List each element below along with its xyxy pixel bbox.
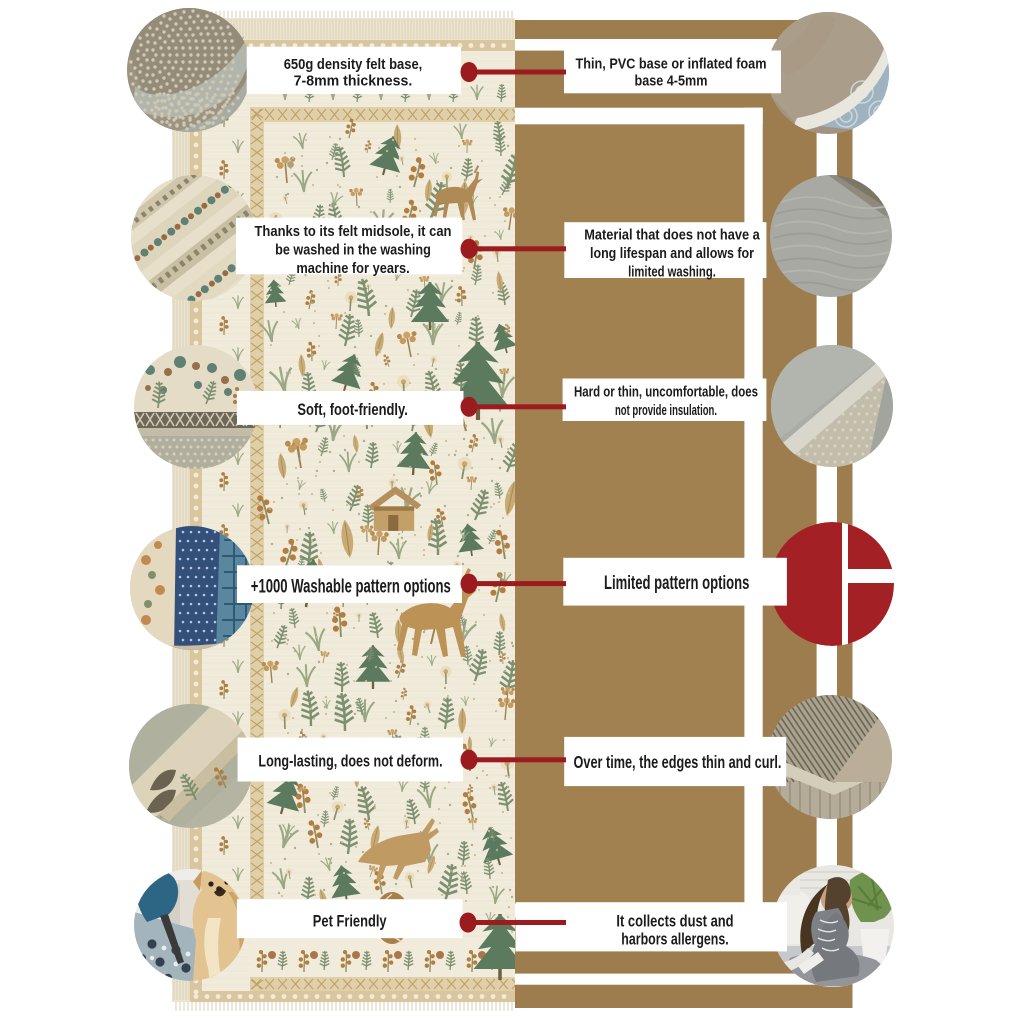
svg-text:+1000 Washable pattern options: +1000 Washable pattern options [251,577,451,598]
svg-text:machine for years.: machine for years. [296,261,409,277]
svg-text:base 4-5mm: base 4-5mm [635,73,708,89]
svg-text:be washed in the washing: be washed in the washing [275,243,431,259]
svg-text:long lifespan and allows for: long lifespan and allows for [590,246,754,262]
svg-text:It collects dust and: It collects dust and [616,911,733,930]
svg-text:harbors allergens.: harbors allergens. [621,930,728,949]
svg-text:Pet Friendly: Pet Friendly [313,912,387,931]
svg-text:Limited pattern options: Limited pattern options [604,573,749,594]
svg-text:Material that does not have a: Material that does not have a [584,228,760,244]
svg-text:not provide insulation.: not provide insulation. [615,403,717,419]
svg-text:limited washing.: limited washing. [628,265,716,281]
svg-text:Soft, foot-friendly.: Soft, foot-friendly. [297,400,407,419]
svg-text:Over time, the edges thin and: Over time, the edges thin and curl. [574,752,782,772]
svg-text:Thanks to its felt midsole, it: Thanks to its felt midsole, it can [255,224,452,240]
svg-text:Hard or thin, uncomfortable, d: Hard or thin, uncomfortable, does [574,385,758,401]
svg-text:Thin, PVC base or inflated foa: Thin, PVC base or inflated foam [576,57,767,73]
svg-text:650g density felt base,: 650g density felt base, [284,57,423,73]
svg-text:7-8mm thickness.: 7-8mm thickness. [294,74,413,90]
svg-text:Long-lasting, does not deform.: Long-lasting, does not deform. [258,752,442,771]
